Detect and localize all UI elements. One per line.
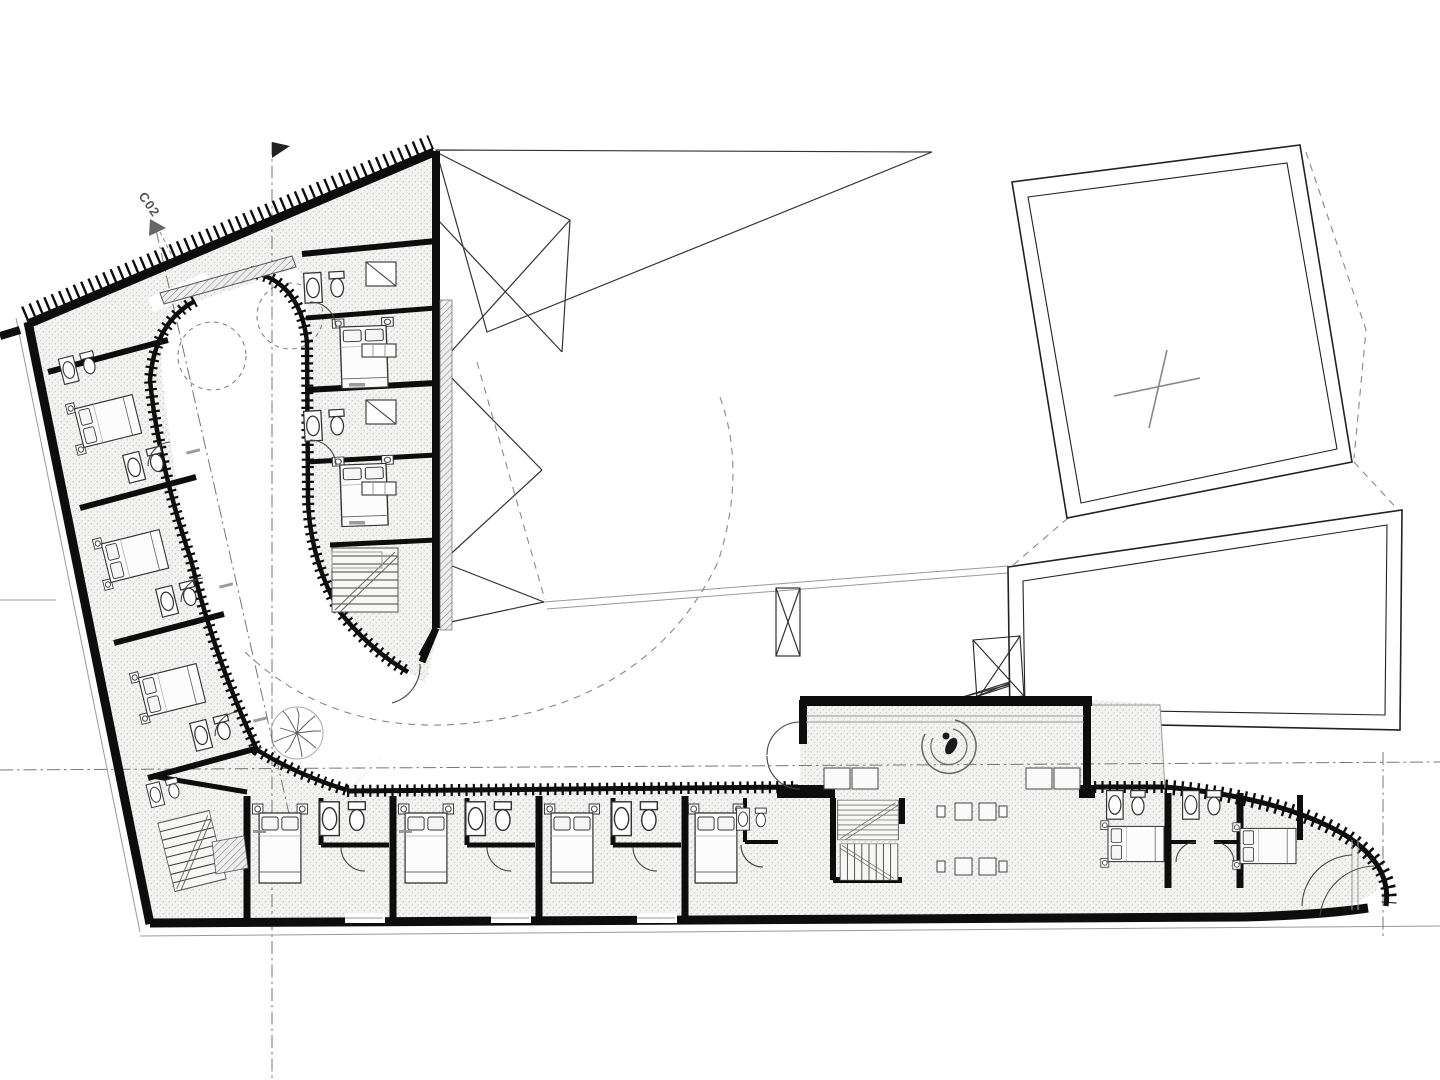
dashed-roof-line [477,362,545,600]
floor-plan-canvas: C02 [0,0,1440,1080]
roof-brace [440,366,542,470]
section-arrow-icon [149,219,166,236]
boundary-corner-mark [0,330,20,336]
section-label: C02 [136,189,164,220]
site-boundary-bottom [140,926,1440,936]
roof-brace [442,562,544,602]
corner-ramp [212,836,248,874]
staircase-lobby-upper [838,800,899,840]
pool-outline [1012,145,1352,518]
bed [252,804,307,883]
bed [688,804,743,883]
roof-brace [441,602,544,624]
section-marker-c02: C02 [136,189,172,256]
roof-line [436,152,570,220]
bed [1233,823,1296,869]
bed [398,804,453,883]
bed [544,804,599,883]
staircase-upper-wing [332,548,398,612]
roof-line [562,220,570,352]
roof-brace [442,470,542,562]
roof-ridge-triangle [436,150,932,332]
pool-terrace-outlines [973,145,1402,730]
wall-hatch-band [440,300,452,630]
pier-truss [776,588,800,656]
dashed-roof-line [1354,462,1400,512]
axis-flag-icon [272,142,290,158]
roof-brace [440,220,570,364]
roof-brace [438,220,562,352]
staircase-lobby-lower [840,844,898,880]
bed [1101,821,1164,867]
floor-plan-page: C02 [0,0,1440,1080]
wall-segment [1079,785,1095,798]
